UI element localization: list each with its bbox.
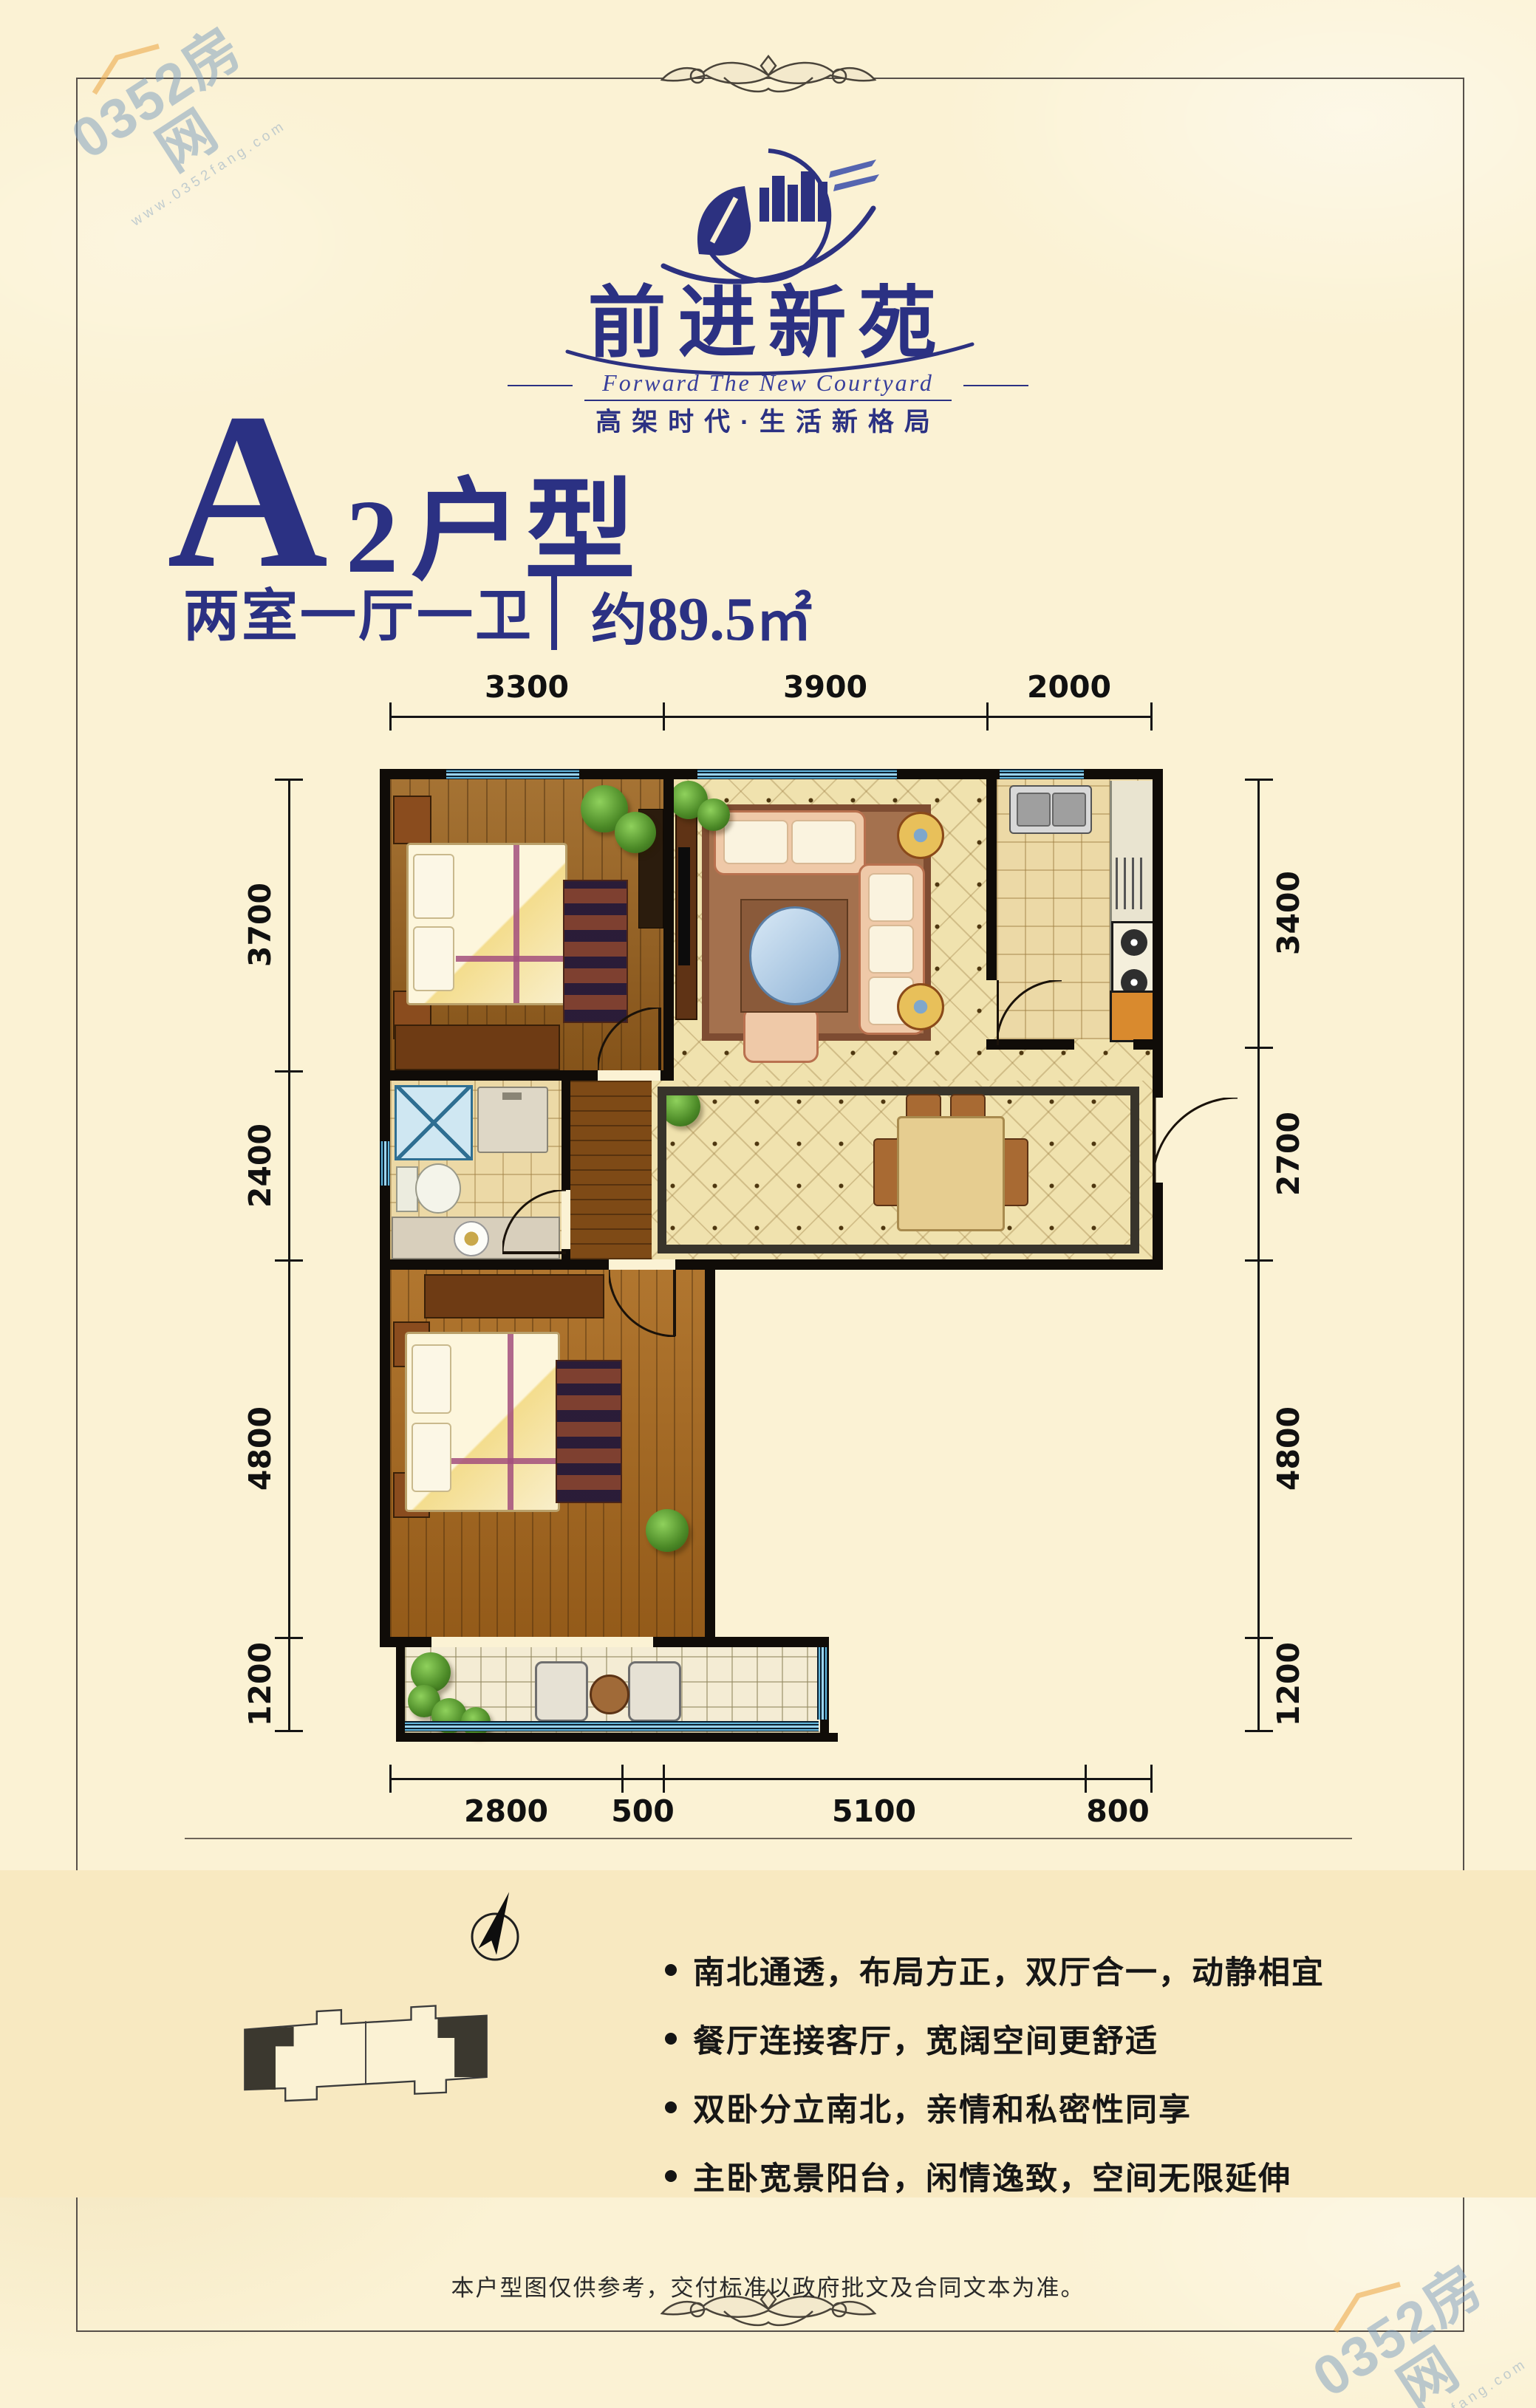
dish-rack (1116, 858, 1148, 909)
balcony-table (590, 1675, 629, 1714)
bullet-icon (665, 1964, 677, 1976)
plant (697, 798, 730, 831)
double-bed (405, 1332, 560, 1512)
wall (663, 779, 674, 1070)
wall (380, 1637, 431, 1647)
sofa-cushion (868, 873, 914, 922)
feature-text: 双卧分立南北，亲情和私密性同享 (693, 2084, 1192, 2130)
sofa-two-seat (714, 810, 866, 875)
wall (380, 1070, 598, 1081)
double-bed (406, 843, 567, 1005)
bedside-rug (556, 1360, 622, 1503)
feature-text: 主卧宽景阳台，闲情逸致，空间无限延伸 (693, 2153, 1291, 2199)
kitchen-sink (1009, 785, 1092, 834)
pillow (412, 1344, 451, 1414)
sink-basin (1017, 793, 1051, 827)
balcony-wall (396, 1647, 405, 1742)
wall (1153, 769, 1163, 1098)
wall (1133, 1039, 1153, 1050)
window (1000, 769, 1084, 779)
door-bathroom (502, 1190, 567, 1254)
wall (380, 769, 390, 1647)
sofa-cushion (868, 925, 914, 974)
bullet-icon (665, 2170, 677, 2182)
bedside-rug (563, 880, 628, 1023)
bed-trim (508, 1334, 513, 1510)
feature-text: 餐厅连接客厅，宽阔空间更舒适 (693, 2016, 1158, 2062)
pillow (413, 926, 454, 991)
balcony-chair (628, 1661, 681, 1722)
sink-basin (1052, 793, 1086, 827)
wardrobe (424, 1274, 604, 1318)
window (446, 769, 579, 779)
side-table (897, 812, 944, 859)
nightstand (393, 796, 431, 844)
floorplan-poster: 0352房网 www.0352fang.com 0352房网 www.0352f… (0, 0, 1536, 2408)
tv (678, 847, 690, 965)
wall (562, 1081, 570, 1190)
toilet (415, 1163, 461, 1214)
fridge (1110, 991, 1157, 1042)
wall (1153, 1183, 1163, 1270)
feature-item: 南北通透，布局方正，双厅合一，动静相宜 (665, 1947, 1325, 1993)
balcony-window (817, 1647, 827, 1720)
wardrobe (395, 1025, 560, 1070)
washer-dial (502, 1092, 522, 1100)
wall (986, 779, 997, 980)
wall (705, 1270, 715, 1637)
pillow (412, 1423, 451, 1492)
feature-item: 餐厅连接客厅，宽阔空间更舒适 (665, 2016, 1158, 2062)
info-band: 南北通透，布局方正，双厅合一，动静相宜 餐厅连接客厅，宽阔空间更舒适 双卧分立南… (0, 1870, 1536, 2197)
window (697, 769, 897, 779)
side-table (897, 983, 944, 1030)
building-key-plan (236, 1985, 495, 2115)
wall (653, 1637, 829, 1647)
shower (395, 1085, 473, 1160)
feature-text: 南北通透，布局方正，双厅合一，动静相宜 (693, 1947, 1325, 1993)
bullet-icon (665, 2033, 677, 2045)
window (380, 1141, 390, 1186)
coffee-table (749, 906, 841, 1005)
wall (380, 1259, 609, 1270)
footer-disclaimer: 本户型图仅供参考，交付标准以政府批文及合同文本为准。 (0, 2269, 1536, 2302)
balcony-window (405, 1721, 819, 1731)
sofa-cushion (791, 820, 856, 864)
bed-trim (451, 1458, 558, 1464)
sofa-cushion (723, 820, 788, 864)
plant (615, 812, 656, 853)
feature-item: 双卧分立南北，亲情和私密性同享 (665, 2084, 1192, 2130)
wash-basin (454, 1221, 489, 1256)
door-bedroom-north (598, 1008, 661, 1071)
bed-trim (513, 845, 519, 1003)
wall (661, 1070, 674, 1081)
balcony-chair (535, 1661, 588, 1722)
dining-table (897, 1116, 1005, 1231)
door-bedroom-south (609, 1270, 676, 1337)
feature-item: 主卧宽景阳台，闲情逸致，空间无限延伸 (665, 2153, 1291, 2199)
pillow (413, 854, 454, 919)
burner (1121, 929, 1147, 956)
plant (646, 1509, 689, 1552)
wall (675, 1259, 1153, 1270)
bullet-icon (665, 2101, 677, 2113)
door-entry (1153, 1098, 1238, 1183)
balcony-wall (396, 1733, 838, 1742)
compass-north-icon (454, 1885, 536, 1977)
flourish-ornament-top (635, 53, 901, 100)
ottoman (743, 1007, 819, 1063)
bed-trim (456, 956, 565, 962)
washer (477, 1087, 548, 1153)
door-kitchen (997, 980, 1062, 1046)
